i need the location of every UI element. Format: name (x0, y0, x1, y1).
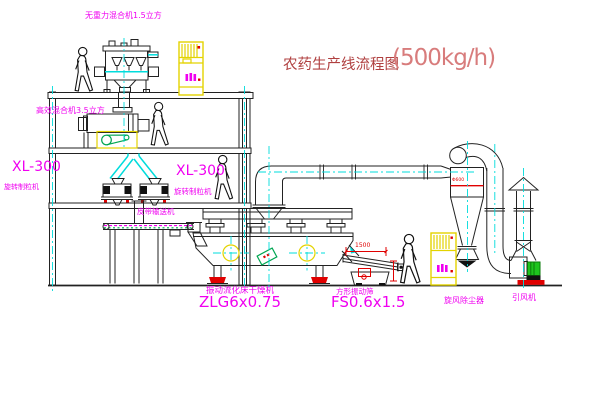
dryer-inspection-tag (257, 248, 277, 265)
screen-model-label: FS0.6x1.5 (331, 295, 405, 310)
control-cabinet-top (179, 42, 203, 95)
fan-label: 引风机 (512, 294, 536, 302)
dryer-legs (207, 266, 330, 284)
cyclone-label: 旋风除尘器 (444, 297, 484, 305)
person-ground (401, 234, 420, 282)
floor2-beam (49, 148, 251, 154)
process-flow-diagram: 农药生产线流程图 (500kg/h) 无重力混合机1.5立方 高效混合机3.5立… (0, 0, 600, 403)
page-title-capacity: (500kg/h) (392, 45, 495, 71)
fluid-bed-dryer (193, 209, 359, 284)
cyclone-dia-text: Φ600 (452, 179, 464, 184)
dryer-model-label: ZLG6x0.75 (199, 295, 281, 310)
conveyor-legs (110, 230, 163, 284)
induced-draft-fan (510, 257, 545, 285)
granulator-left-name: 旋转制粒机 (4, 184, 39, 191)
gravity-free-mixer-label: 无重力混合机1.5立方 (85, 12, 162, 20)
granulator-right-model: XL-300 (176, 164, 225, 178)
roof-beam (48, 93, 253, 99)
gravity-free-mixer (95, 40, 160, 93)
person-second-floor (151, 102, 168, 145)
person-top-floor (75, 47, 92, 91)
high-efficiency-mixer-label: 高效混合机3.5立方 (36, 107, 105, 115)
page-title: 农药生产线流程图 (283, 53, 399, 74)
granulator-left-model: XL-300 (12, 160, 61, 174)
high-efficiency-mixer (79, 114, 150, 148)
fan-base (518, 280, 545, 285)
control-cabinet-right (431, 233, 456, 285)
belt-conveyor (103, 224, 194, 284)
drive-guard (97, 132, 137, 149)
granulator-right-name: 旋转制粒机 (174, 188, 212, 196)
dryer-stubs (206, 219, 345, 233)
granulator-left (101, 179, 133, 206)
belt-conveyor-label: 皮带输送机 (137, 208, 175, 216)
y-chute (110, 154, 157, 180)
screen-dim-text: 1500 (355, 243, 370, 249)
